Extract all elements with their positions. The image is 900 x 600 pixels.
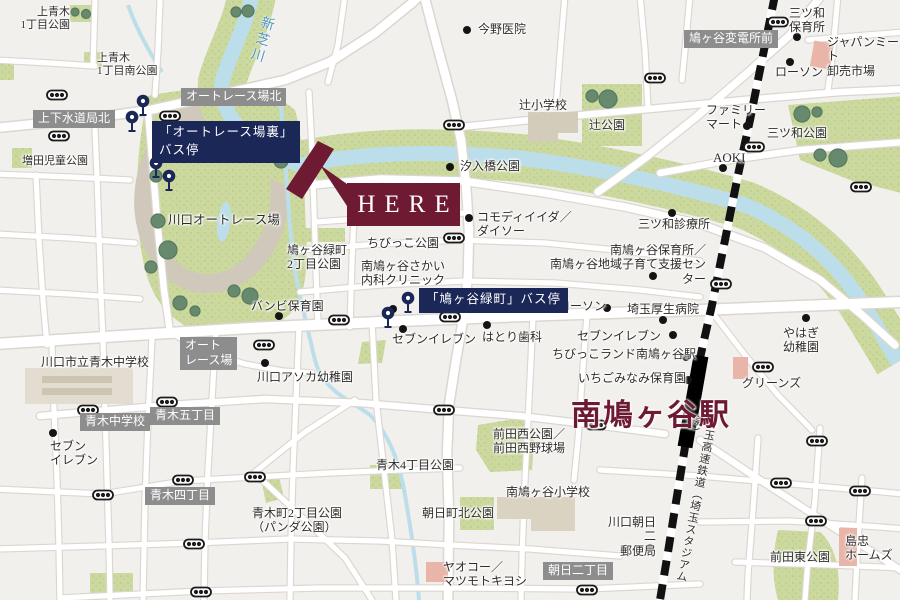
- label-kawaguchi-asahi2-yubinkyoku: 川口朝日二 郵便局: [598, 515, 656, 558]
- label-seven-eleven-e: セブンイレブン: [577, 329, 661, 343]
- label-tsuji-park: 辻公園: [589, 118, 625, 132]
- label-mitsuwa-park: 三ツ和公園: [767, 126, 827, 140]
- label-saitama-kosei-byoin: 埼玉厚生病院: [627, 302, 699, 316]
- label-asahicho-kita-park: 朝日町北公園: [422, 506, 494, 520]
- label-bambi-hoikuen: バンビ保育園: [251, 299, 324, 313]
- label-maeda-nishi-park: 前田西公園／ 前田西野球場: [493, 427, 565, 456]
- label-japan-meat: ジャパンミート 卸売市場: [827, 35, 900, 78]
- tag-auto-race-jo: オート レース場: [180, 337, 237, 370]
- label-chibikko-park: ちびっこ公園: [367, 236, 439, 250]
- label-kawaguchi-auto-race-jo: 川口オートレース場: [168, 213, 280, 228]
- label-family-mart: ファミリー マート: [706, 103, 766, 132]
- label-greens: グリーンズ: [742, 376, 801, 390]
- tag-aoki-4chome: 青木四丁目: [145, 487, 215, 505]
- aoki-junior-high-building: [25, 368, 133, 404]
- tag-hatogaya-hendensho-mae: 鳩ヶ谷変電所前: [684, 30, 778, 48]
- label-mitsuwa-shinryojo: 三ツ和診療所: [638, 217, 710, 231]
- label-chibikko-land: ちびっこランド南鳩ヶ谷駅: [552, 347, 696, 361]
- label-aoki-4chome-park: 青木4丁目公園: [376, 458, 454, 472]
- bus-stop-tag-hatogaya-midoricho: 「鳩ヶ谷緑町」バス停: [419, 288, 568, 313]
- label-kamiaoki-1chome-minami-park: 上青木 1丁目南公園: [97, 52, 158, 78]
- label-kamiaoki-1chome-park: 上青木 1丁目公園: [16, 6, 70, 32]
- here-label-box: HERE: [347, 183, 460, 226]
- label-yaoko-matsukiyo: ヤオコー／ マツモトキヨシ: [443, 560, 527, 589]
- label-seven-eleven-sw: セブン イレブン: [50, 439, 98, 468]
- label-kawaguchi-shiritsu-aoki-chugakko: 川口市立青木中学校: [41, 355, 149, 369]
- label-minami-hatogaya-shogakko: 南鳩ヶ谷小学校: [506, 485, 590, 499]
- label-konno-iin: 今野医院: [478, 22, 526, 36]
- label-aoki-store: AOKI: [713, 150, 746, 166]
- label-minami-hatogaya-sakai-naika: 南鳩ヶ谷さかい 内科クリニック: [361, 259, 445, 288]
- label-aokicho-2chome-park: 青木町2丁目公園 （パンダ公園）: [252, 506, 342, 535]
- label-kawaguchi-asoka-yochien: 川口アソカ幼稚園: [257, 370, 353, 384]
- label-mitsuwa-hoikusho: 三ツ和 保育所: [789, 6, 825, 35]
- label-yahagi-yochien: やはぎ 幼稚園: [783, 326, 819, 355]
- label-hatori-shika: はとり歯科: [482, 330, 542, 344]
- label-tsuji-shogakko: 辻小学校: [519, 98, 567, 112]
- tag-asahi-2chome: 朝日二丁目: [543, 562, 613, 580]
- access-map: 上青木 1丁目公園 上青木 1丁目南公園 増田児童公園 今野医院 辻小学校 辻公…: [0, 0, 900, 600]
- tag-aoki-chugakko: 青木中学校: [80, 413, 150, 431]
- label-lawson-ne: ローソン: [775, 65, 823, 79]
- station-name: 南鳩ヶ谷駅: [571, 390, 731, 434]
- bus-stop-tag-auto-race-ura: 「オートレース場裏」 バス停: [152, 121, 300, 163]
- label-maeda-higashi-park: 前田東公園: [770, 550, 830, 564]
- label-komodi-iida-daiso: コモディイイダ／ ダイソー: [477, 210, 572, 239]
- label-shimachu-homes: 島忠 ホームズ: [845, 534, 893, 563]
- label-masuda-jido-park: 増田児童公園: [22, 155, 88, 168]
- tag-aoki-5chome: 青木五丁目: [150, 407, 220, 425]
- label-ichigo-minami-hoikuen: いちごみなみ保育園: [578, 371, 686, 385]
- label-shioiribashi-park: 汐入橋公園: [460, 159, 520, 173]
- label-hatogaya-midoricho-2chome-park: 鳩ヶ谷緑町 2丁目公園: [287, 243, 347, 272]
- label-minami-hatogaya-hoikusho-center: 南鳩ヶ谷保育所／ 南鳩ヶ谷地域子育て支援センター: [540, 243, 706, 286]
- tag-kamishimo-suidokyoku-kita: 上下水道局北: [33, 110, 115, 128]
- tag-auto-race-jo-kita: オートレース場北: [181, 88, 286, 106]
- label-seven-eleven-center: セブンイレブン: [392, 332, 476, 346]
